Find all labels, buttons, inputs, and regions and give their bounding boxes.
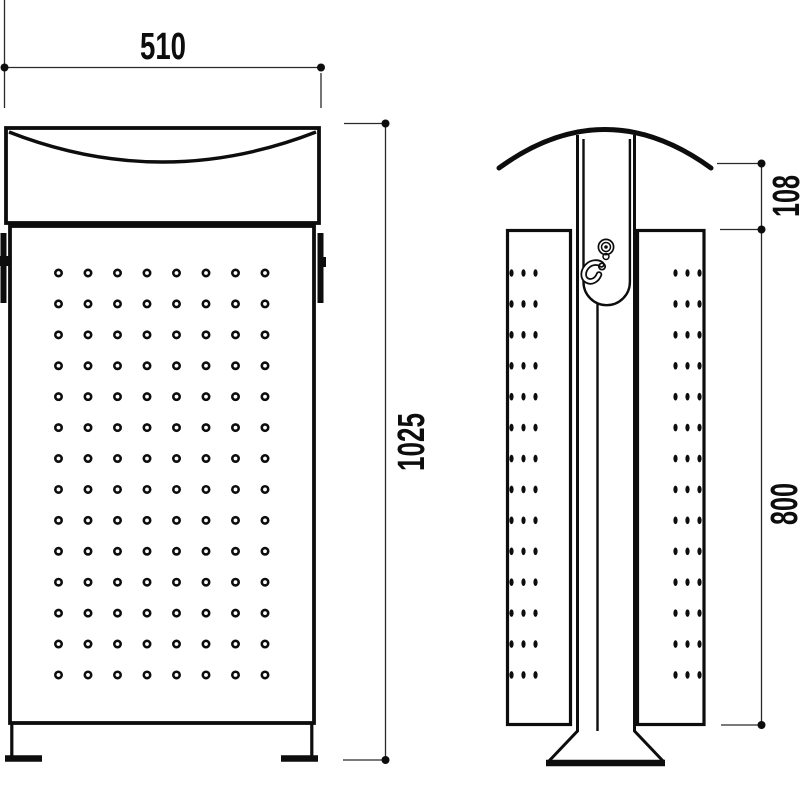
perforation-hole	[509, 362, 513, 370]
perforation-hole	[697, 331, 701, 339]
perforation-hole	[521, 517, 525, 525]
side-panel-right	[638, 231, 705, 725]
perforation-hole	[685, 300, 689, 308]
perforation-hole	[697, 455, 701, 463]
perforation-hole	[55, 301, 61, 307]
side-view	[499, 130, 711, 764]
perforation-hole	[173, 270, 179, 276]
perforation-hole	[697, 424, 701, 432]
perforation-hole	[533, 362, 537, 370]
perforation-hole	[203, 363, 209, 369]
tab-bar	[318, 233, 324, 303]
perforation-hole	[673, 578, 677, 586]
perforation-hole	[232, 424, 238, 430]
perforation-hole	[144, 424, 150, 430]
perforation-hole	[262, 486, 268, 492]
perforation-hole	[232, 548, 238, 554]
perforation-hole	[55, 363, 61, 369]
perforation-hole	[697, 578, 701, 586]
perforation-hole	[509, 331, 513, 339]
hook-icon	[584, 263, 606, 282]
perforation-hole	[114, 363, 120, 369]
dimension-endpoint	[382, 120, 390, 128]
perforation-hole	[114, 424, 120, 430]
perforation-hole	[144, 455, 150, 461]
perforation-hole	[55, 332, 61, 338]
perforation-hole	[697, 671, 701, 679]
perforation-hole	[673, 455, 677, 463]
front-view	[0, 128, 326, 759]
perforation-hole	[262, 548, 268, 554]
perforation-hole	[114, 610, 120, 616]
perforation-hole	[203, 641, 209, 647]
perforation-hole	[203, 486, 209, 492]
side-left-hole-grid	[509, 269, 537, 679]
front-base	[5, 723, 318, 759]
perforation-hole	[685, 331, 689, 339]
total-height-dimension: 1025	[343, 120, 433, 765]
perforation-hole	[144, 672, 150, 678]
perforation-hole	[685, 640, 689, 648]
perforation-hole	[173, 641, 179, 647]
perforation-hole	[685, 517, 689, 525]
perforation-hole	[521, 455, 525, 463]
perforation-hole	[85, 548, 91, 554]
perforation-hole	[173, 548, 179, 554]
total-height-dimension-label: 1025	[391, 413, 433, 471]
perforation-hole	[533, 269, 537, 277]
perforation-hole	[232, 301, 238, 307]
lock-center	[604, 245, 608, 249]
perforation-hole	[509, 486, 513, 494]
center-post	[578, 135, 635, 731]
perforation-hole	[509, 455, 513, 463]
perforation-hole	[509, 517, 513, 525]
perforation-hole	[144, 393, 150, 399]
perforation-hole	[85, 641, 91, 647]
perforation-hole	[173, 363, 179, 369]
perforation-hole	[685, 486, 689, 494]
perforation-hole	[232, 579, 238, 585]
perforation-hole	[521, 424, 525, 432]
perforation-hole	[55, 393, 61, 399]
perforation-hole	[114, 517, 120, 523]
perforation-hole	[262, 610, 268, 616]
perforation-hole	[685, 547, 689, 555]
width-dimension: 510	[1, 0, 326, 108]
perforation-hole	[85, 301, 91, 307]
perforation-hole	[114, 672, 120, 678]
perforation-hole	[509, 671, 513, 679]
perforation-hole	[173, 486, 179, 492]
perforation-hole	[114, 270, 120, 276]
perforation-hole	[55, 548, 61, 554]
perforation-hole	[673, 640, 677, 648]
perforation-hole	[685, 578, 689, 586]
perforation-hole	[521, 331, 525, 339]
front-hole-grid	[55, 270, 268, 678]
perforation-hole	[173, 672, 179, 678]
perforation-hole	[509, 640, 513, 648]
perforation-hole	[114, 393, 120, 399]
perforation-hole	[673, 393, 677, 401]
perforation-hole	[697, 640, 701, 648]
perforation-hole	[262, 332, 268, 338]
perforation-hole	[144, 363, 150, 369]
perforation-hole	[262, 517, 268, 523]
perforation-hole	[685, 424, 689, 432]
side-lid-arc	[499, 130, 711, 169]
perforation-hole	[232, 363, 238, 369]
perforation-hole	[521, 547, 525, 555]
perforation-hole	[521, 609, 525, 617]
perforation-hole	[697, 393, 701, 401]
perforation-hole	[55, 672, 61, 678]
perforation-hole	[673, 517, 677, 525]
perforation-hole	[521, 578, 525, 586]
perforation-hole	[85, 517, 91, 523]
perforation-hole	[144, 332, 150, 338]
perforation-hole	[509, 269, 513, 277]
perforation-hole	[521, 486, 525, 494]
perforation-hole	[533, 331, 537, 339]
perforation-hole	[533, 455, 537, 463]
perforation-hole	[262, 301, 268, 307]
side-height-dimensions: 108 800	[717, 160, 800, 730]
perforation-hole	[232, 610, 238, 616]
perforation-hole	[697, 269, 701, 277]
perforation-hole	[173, 424, 179, 430]
perforation-hole	[697, 547, 701, 555]
perforation-hole	[114, 301, 120, 307]
perforation-hole	[262, 455, 268, 461]
perforation-hole	[533, 547, 537, 555]
lock-icon	[598, 239, 613, 259]
perforation-hole	[509, 609, 513, 617]
perforation-hole	[203, 579, 209, 585]
perforation-hole	[55, 517, 61, 523]
perforation-hole	[673, 547, 677, 555]
perforation-hole	[521, 269, 525, 277]
perforation-hole	[144, 579, 150, 585]
perforation-hole	[85, 486, 91, 492]
perforation-hole	[203, 517, 209, 523]
perforation-hole	[144, 610, 150, 616]
mounting-tab-left	[0, 233, 9, 303]
perforation-hole	[144, 548, 150, 554]
perforation-hole	[144, 486, 150, 492]
dimension-endpoint	[1, 64, 9, 72]
perforation-hole	[509, 393, 513, 401]
perforation-hole	[114, 548, 120, 554]
perforation-hole	[85, 270, 91, 276]
perforation-hole	[85, 424, 91, 430]
tab-knob	[0, 256, 9, 266]
perforation-hole	[85, 579, 91, 585]
perforation-hole	[232, 486, 238, 492]
perforation-hole	[85, 455, 91, 461]
perforation-hole	[521, 362, 525, 370]
perforation-hole	[232, 332, 238, 338]
perforation-hole	[673, 671, 677, 679]
perforation-hole	[144, 270, 150, 276]
mounting-tab-right	[318, 233, 327, 303]
tab-knob	[318, 257, 327, 267]
perforation-hole	[521, 393, 525, 401]
perforation-hole	[673, 424, 677, 432]
perforation-hole	[262, 270, 268, 276]
perforation-hole	[533, 671, 537, 679]
perforation-hole	[55, 424, 61, 430]
perforation-hole	[203, 455, 209, 461]
body-height-dimension-label: 800	[764, 483, 800, 525]
perforation-hole	[114, 579, 120, 585]
perforation-hole	[697, 609, 701, 617]
drawing-canvas: 510 1025 108 800	[0, 0, 800, 800]
perforation-hole	[114, 455, 120, 461]
side-right-hole-grid	[673, 269, 701, 679]
perforation-hole	[533, 424, 537, 432]
perforation-hole	[673, 300, 677, 308]
perforation-hole	[232, 270, 238, 276]
perforation-hole	[114, 486, 120, 492]
perforation-hole	[533, 578, 537, 586]
perforation-hole	[203, 610, 209, 616]
perforation-hole	[521, 300, 525, 308]
perforation-hole	[521, 640, 525, 648]
perforation-hole	[232, 393, 238, 399]
perforation-hole	[203, 270, 209, 276]
perforation-hole	[521, 671, 525, 679]
perforation-hole	[533, 393, 537, 401]
perforation-hole	[173, 301, 179, 307]
dimension-endpoint	[758, 226, 766, 234]
perforation-hole	[685, 609, 689, 617]
perforation-hole	[673, 609, 677, 617]
perforation-hole	[509, 547, 513, 555]
perforation-hole	[697, 362, 701, 370]
perforation-hole	[55, 641, 61, 647]
perforation-hole	[232, 517, 238, 523]
dimension-endpoint	[317, 64, 325, 72]
lid-height-dimension-label: 108	[766, 175, 800, 217]
perforation-hole	[85, 393, 91, 399]
perforation-hole	[55, 579, 61, 585]
perforation-hole	[144, 641, 150, 647]
perforation-hole	[673, 269, 677, 277]
perforation-hole	[262, 393, 268, 399]
front-lid-concave-curve	[9, 132, 316, 162]
side-base	[546, 728, 665, 763]
perforation-hole	[85, 610, 91, 616]
perforation-hole	[685, 671, 689, 679]
perforation-hole	[685, 455, 689, 463]
perforation-hole	[85, 363, 91, 369]
perforation-hole	[673, 331, 677, 339]
perforation-hole	[685, 393, 689, 401]
perforation-hole	[55, 270, 61, 276]
perforation-hole	[673, 362, 677, 370]
perforation-hole	[533, 486, 537, 494]
side-panel-left	[508, 231, 571, 725]
perforation-hole	[673, 486, 677, 494]
perforation-hole	[509, 578, 513, 586]
perforation-hole	[85, 672, 91, 678]
width-dimension-label: 510	[140, 26, 186, 68]
perforation-hole	[533, 640, 537, 648]
base-flare-right	[635, 728, 664, 761]
perforation-hole	[55, 455, 61, 461]
dimension-endpoint	[758, 721, 766, 729]
perforation-hole	[262, 641, 268, 647]
perforation-hole	[55, 610, 61, 616]
perforation-hole	[685, 362, 689, 370]
perforation-hole	[697, 517, 701, 525]
dimension-endpoint	[382, 756, 390, 764]
perforation-hole	[262, 424, 268, 430]
tab-bar	[1, 233, 7, 303]
perforation-hole	[203, 424, 209, 430]
perforation-hole	[232, 641, 238, 647]
perforation-hole	[533, 609, 537, 617]
dimension-annotations: 510 1025 108 800	[1, 0, 800, 764]
perforation-hole	[144, 517, 150, 523]
perforation-hole	[697, 486, 701, 494]
perforation-hole	[85, 332, 91, 338]
perforation-hole	[203, 672, 209, 678]
perforation-hole	[685, 269, 689, 277]
perforation-hole	[533, 517, 537, 525]
perforation-hole	[232, 455, 238, 461]
perforation-hole	[173, 610, 179, 616]
perforation-hole	[173, 517, 179, 523]
perforation-hole	[509, 300, 513, 308]
front-lid	[6, 128, 319, 223]
perforation-hole	[55, 486, 61, 492]
perforation-hole	[509, 424, 513, 432]
base-flare-left	[549, 728, 578, 761]
perforation-hole	[262, 363, 268, 369]
perforation-hole	[173, 332, 179, 338]
perforation-hole	[173, 579, 179, 585]
perforation-hole	[114, 332, 120, 338]
perforation-hole	[173, 455, 179, 461]
perforation-hole	[203, 393, 209, 399]
perforation-hole	[262, 579, 268, 585]
perforation-hole	[173, 393, 179, 399]
perforation-hole	[203, 332, 209, 338]
perforation-hole	[203, 301, 209, 307]
perforation-hole	[262, 672, 268, 678]
perforation-hole	[697, 300, 701, 308]
technical-drawing: 510 1025 108 800	[0, 0, 800, 800]
perforation-hole	[232, 672, 238, 678]
perforation-hole	[203, 548, 209, 554]
perforation-hole	[144, 301, 150, 307]
perforation-hole	[114, 641, 120, 647]
dimension-endpoint	[758, 160, 766, 168]
perforation-hole	[533, 300, 537, 308]
